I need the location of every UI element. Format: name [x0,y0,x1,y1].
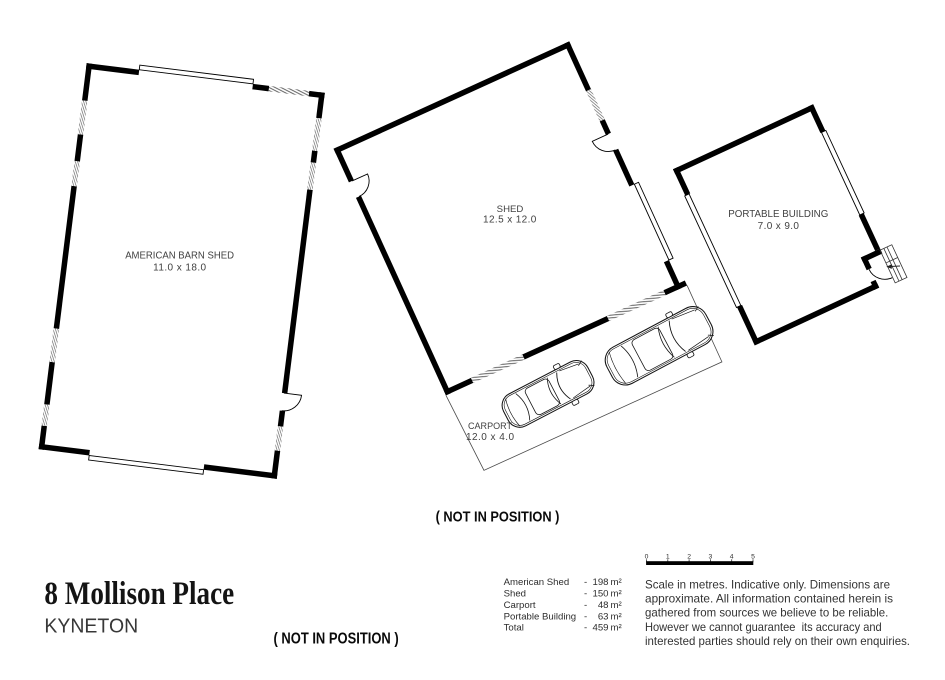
svg-text:1: 1 [666,553,670,560]
svg-text:KYNETON: KYNETON [44,615,138,638]
svg-text:m²: m² [611,600,623,611]
svg-text:approximate. All information c: approximate. All information contained h… [645,592,893,606]
svg-text:Scale in metres. Indicative on: Scale in metres. Indicative only. Dimens… [645,577,890,591]
svg-text:Total: Total [504,623,524,634]
svg-text:-: - [584,611,587,622]
svg-text:m²: m² [611,611,623,622]
svg-text:3: 3 [709,553,713,560]
svg-text:-: - [584,600,587,611]
svg-text:2: 2 [687,553,691,560]
svg-text:( NOT IN POSITION ): ( NOT IN POSITION ) [274,630,399,648]
svg-text:m²: m² [611,623,623,634]
svg-text:459: 459 [592,623,608,634]
svg-text:-: - [584,623,587,634]
svg-text:AMERICAN BARN SHED: AMERICAN BARN SHED [125,250,234,261]
svg-text:interested parties should rely: interested parties should rely on their … [645,634,910,648]
svg-text:However we cannot guarantee i: However we cannot guarantee its accuracy… [645,620,882,634]
svg-text:12.0 x 4.0: 12.0 x 4.0 [466,432,514,443]
svg-text:Portable Building: Portable Building [504,611,577,622]
svg-text:American Shed: American Shed [504,577,570,588]
svg-text:m²: m² [611,588,623,599]
svg-text:m²: m² [611,577,623,588]
svg-text:63: 63 [598,611,609,622]
svg-text:gathered from sources we belie: gathered from sources we believe to be r… [645,606,888,620]
svg-text:198: 198 [592,577,608,588]
svg-text:Carport: Carport [504,600,536,611]
svg-text:-: - [584,577,587,588]
svg-text:11.0 x 18.0: 11.0 x 18.0 [153,262,206,273]
svg-text:7.0 x 9.0: 7.0 x 9.0 [758,221,800,232]
svg-text:PORTABLE BUILDING: PORTABLE BUILDING [728,209,828,220]
svg-text:Shed: Shed [504,588,526,599]
svg-text:48: 48 [598,600,609,611]
svg-text:0: 0 [645,553,649,560]
svg-text:8 Mollison Place: 8 Mollison Place [44,574,234,611]
svg-text:5: 5 [751,553,755,560]
svg-text:12.5 x 12.0: 12.5 x 12.0 [483,215,537,226]
svg-text:SHED: SHED [497,204,524,215]
svg-text:150: 150 [592,588,608,599]
svg-text:4: 4 [730,553,734,560]
svg-text:CARPORT: CARPORT [468,421,512,432]
svg-text:( NOT IN POSITION ): ( NOT IN POSITION ) [436,507,560,524]
svg-text:-: - [584,588,587,599]
